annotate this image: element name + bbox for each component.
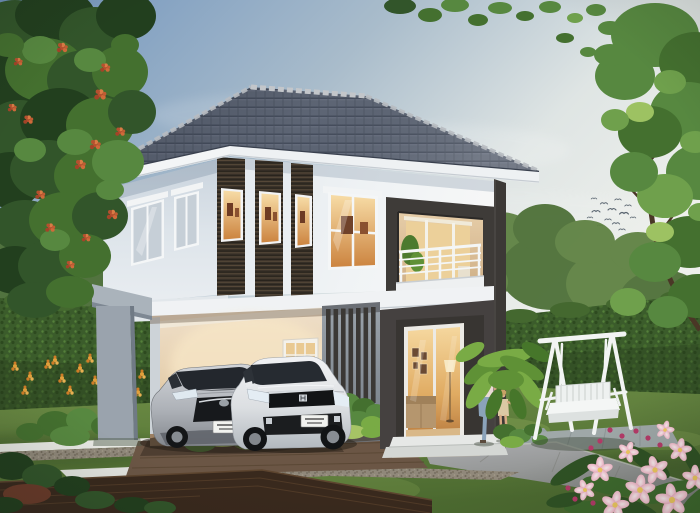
scene-svg — [0, 0, 700, 513]
vignette — [0, 0, 700, 513]
house-render-image — [0, 0, 700, 513]
